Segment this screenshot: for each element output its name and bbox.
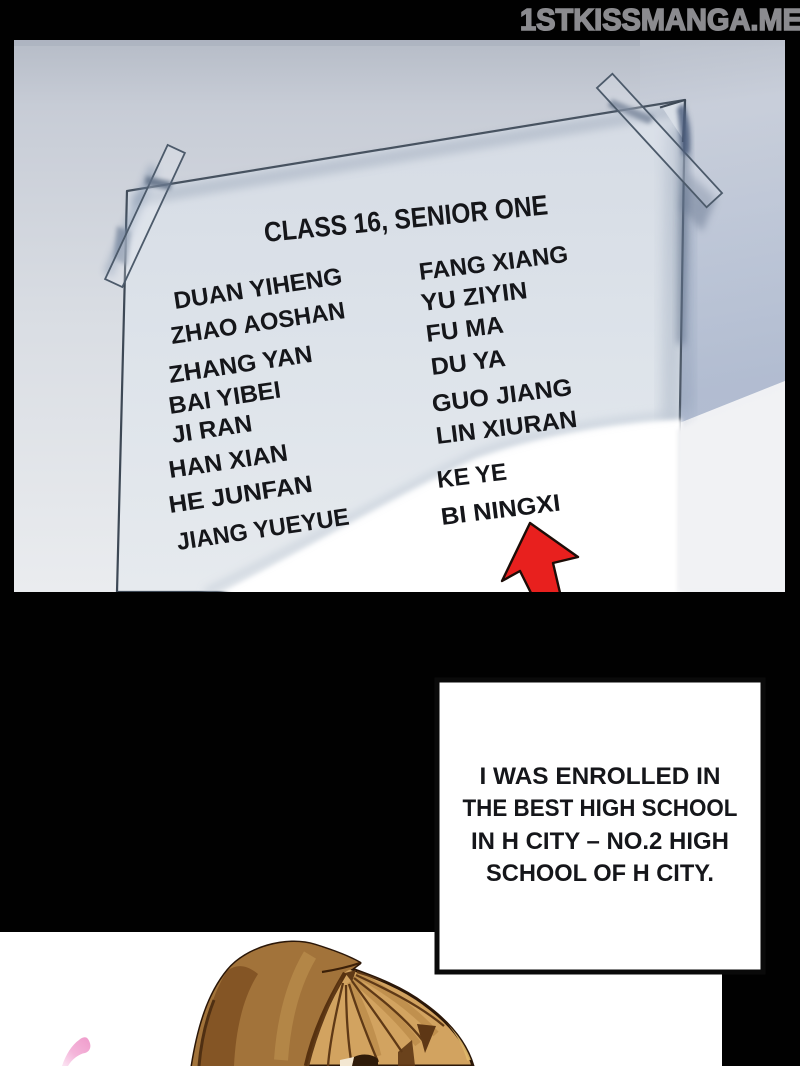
svg-text:SCHOOL OF H CITY.: SCHOOL OF H CITY. [486,860,714,887]
svg-text:IN H CITY – NO.2 HIGH: IN H CITY – NO.2 HIGH [471,828,729,855]
svg-text:1STKISSMANGA.ME: 1STKISSMANGA.ME [520,2,800,37]
svg-text:I WAS ENROLLED IN: I WAS ENROLLED IN [480,763,721,790]
svg-text:THE BEST HIGH SCHOOL: THE BEST HIGH SCHOOL [463,795,738,822]
